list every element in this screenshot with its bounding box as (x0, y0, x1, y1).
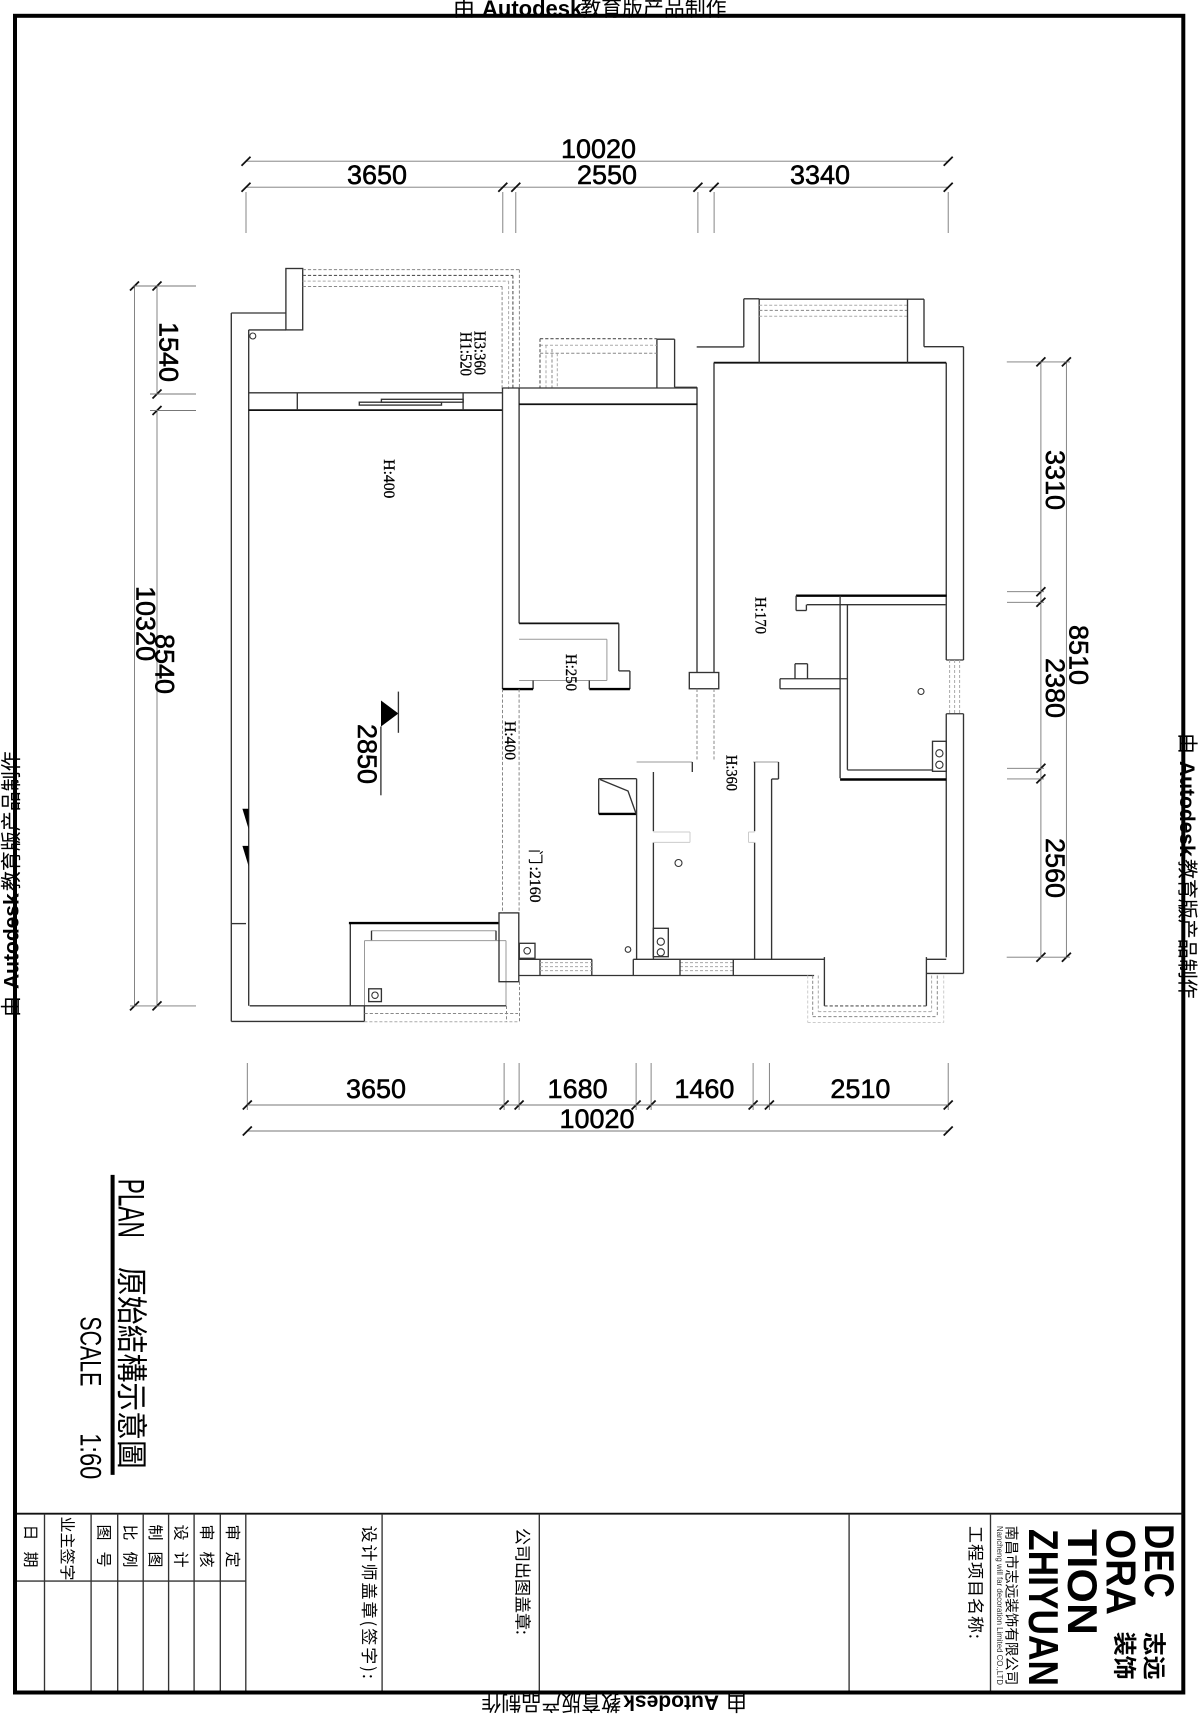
svg-text:3340: 3340 (790, 160, 850, 190)
svg-text:Autodesk: Autodesk (482, 0, 583, 21)
svg-text:10020: 10020 (559, 1104, 634, 1134)
svg-text:3650: 3650 (346, 1074, 406, 1104)
svg-text:SCALE: SCALE (73, 1316, 106, 1386)
svg-text:Autodesk: Autodesk (1175, 761, 1198, 857)
svg-text:1540: 1540 (154, 322, 184, 382)
svg-text:1:60: 1:60 (73, 1433, 106, 1479)
svg-text:Autodesk: Autodesk (1, 893, 24, 989)
svg-text:3650: 3650 (347, 160, 407, 190)
svg-text:8540: 8540 (150, 634, 180, 694)
svg-text:2850: 2850 (352, 724, 382, 784)
svg-text:H1:520: H1:520 (457, 332, 476, 376)
svg-text:1680: 1680 (548, 1074, 608, 1104)
svg-text:2550: 2550 (577, 160, 637, 190)
svg-text:H:170: H:170 (752, 597, 769, 634)
svg-text:H:250: H:250 (562, 654, 579, 691)
svg-text:2510: 2510 (830, 1074, 890, 1104)
svg-text::2160: :2160 (526, 867, 543, 903)
svg-text:1460: 1460 (674, 1074, 734, 1104)
svg-text:PLAN: PLAN (111, 1179, 152, 1238)
svg-text:3310: 3310 (1040, 450, 1070, 510)
svg-text:H:400: H:400 (380, 459, 397, 498)
svg-text:H:400: H:400 (501, 721, 518, 760)
svg-text:Nancheng will far decoration L: Nancheng will far decoration Limited CO.… (995, 1526, 1005, 1685)
svg-text:2560: 2560 (1040, 838, 1070, 898)
svg-text:H:360: H:360 (723, 755, 740, 791)
svg-text:Autodesk: Autodesk (623, 1691, 719, 1714)
svg-text:2380: 2380 (1040, 658, 1070, 718)
svg-text:ZHIYUAN: ZHIYUAN (1020, 1529, 1067, 1686)
